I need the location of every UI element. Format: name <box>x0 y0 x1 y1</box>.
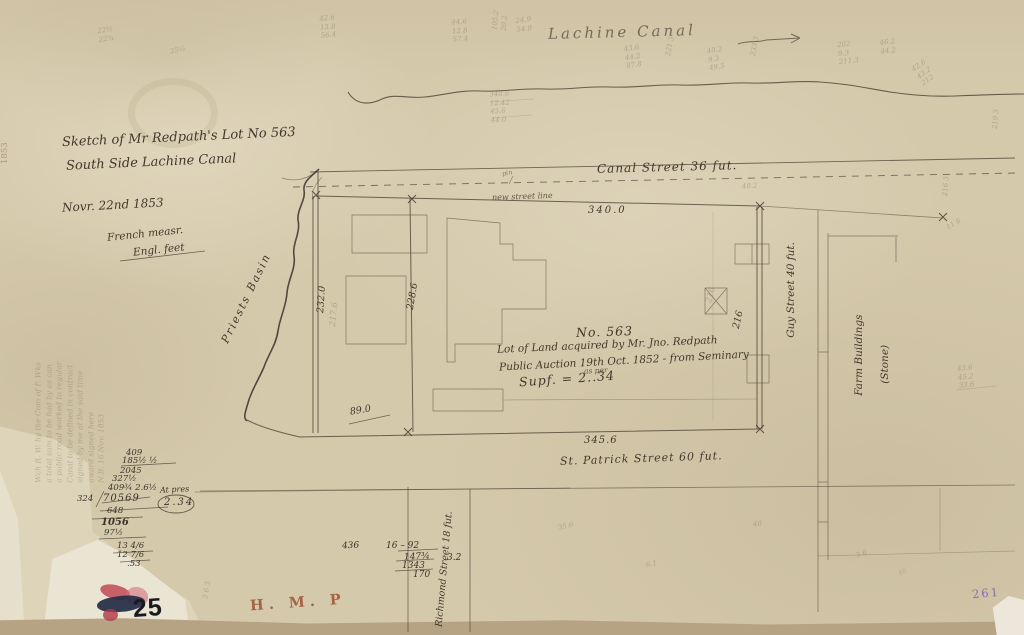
calc-line: 1056 <box>101 517 129 528</box>
calc-mid-line: 16 – 92 <box>386 541 419 551</box>
calc-long-line <box>195 488 570 492</box>
pencil-notes: 216 3 <box>941 176 951 197</box>
canal-street-dashed-line <box>293 173 1015 187</box>
lot-boundary-extension <box>760 206 943 218</box>
map-linework <box>0 0 1024 635</box>
dim-top: 340.0 <box>588 205 627 216</box>
calc-mid-line: 436 <box>342 541 360 552</box>
survey-map-scan: Lachine Canal Sketch of Mr Redpath's Lot… <box>0 0 1024 635</box>
pencil-notes: 43.6 44.2 87.8 <box>623 43 642 70</box>
edge-year-mark: 1853 <box>0 130 10 164</box>
calc-result: 2.34 <box>164 497 194 508</box>
pencil-notes: 105.2 20.2 <box>491 10 510 31</box>
margin-note: Wch R. W. by the Com of P. Wks a total s… <box>33 291 107 483</box>
calc-line: 97½ <box>104 528 123 538</box>
canal-arrow <box>738 34 800 44</box>
ink-blot-red-dot <box>103 609 118 621</box>
pencil-notes: 46.2 44.2 <box>879 37 896 56</box>
pin-tick <box>509 176 513 184</box>
pencil-notes: 202 9.3 211.3 <box>837 39 860 66</box>
basin-shoreline-inner <box>313 177 322 198</box>
basin-shoreline <box>245 169 319 421</box>
calc-dividend: 70569 <box>103 493 140 504</box>
pencil-notes: 43.6 45.2 33.6 <box>957 363 975 390</box>
pencil-notes: 219 3 <box>991 109 1001 130</box>
farm-block-faint <box>818 488 1015 556</box>
pencil-notes: 340.6 12.42 45.6 44.0 <box>489 89 511 124</box>
pencil-notes: 24.9 54.9 <box>515 15 532 34</box>
rear-line <box>503 399 757 400</box>
farm-buildings-material: (Stone) <box>880 284 892 384</box>
pencil-notes: 40 <box>753 520 763 529</box>
archive-number-stamp: 25 <box>132 593 164 624</box>
calc-mid-line: 170 <box>413 570 430 580</box>
calc-line: 185½ ½ <box>122 456 157 466</box>
guy-street-label: Guy Street 40 fut. <box>786 226 798 338</box>
st-patrick-south-line <box>200 485 1015 491</box>
pencil-notes: 40.2 <box>742 181 758 191</box>
pencil-notes: 40.2 9.3 49.5 <box>706 45 725 72</box>
calc-mid-line: 3.2 <box>447 553 461 563</box>
farm-buildings-label: Farm Buildings <box>854 276 866 396</box>
calc-line: 648 <box>107 506 123 516</box>
calc-divisor: 324 <box>77 494 93 504</box>
pencil-notes: 44.6 12.8 57.4 <box>451 17 468 44</box>
calc-line: 409¾ 2.6½ <box>108 483 157 493</box>
dim-bottom: 345.6 <box>584 435 618 446</box>
pencil-notes: 42.6 13.8 56.4 <box>319 13 337 40</box>
purple-number-stamp: 261 <box>971 585 1000 601</box>
calc-line: .53 <box>127 559 141 569</box>
calc-note: At pres <box>160 484 190 495</box>
pencil-notes: 22½ 22¾ <box>97 25 115 44</box>
calc-rules <box>92 251 438 571</box>
